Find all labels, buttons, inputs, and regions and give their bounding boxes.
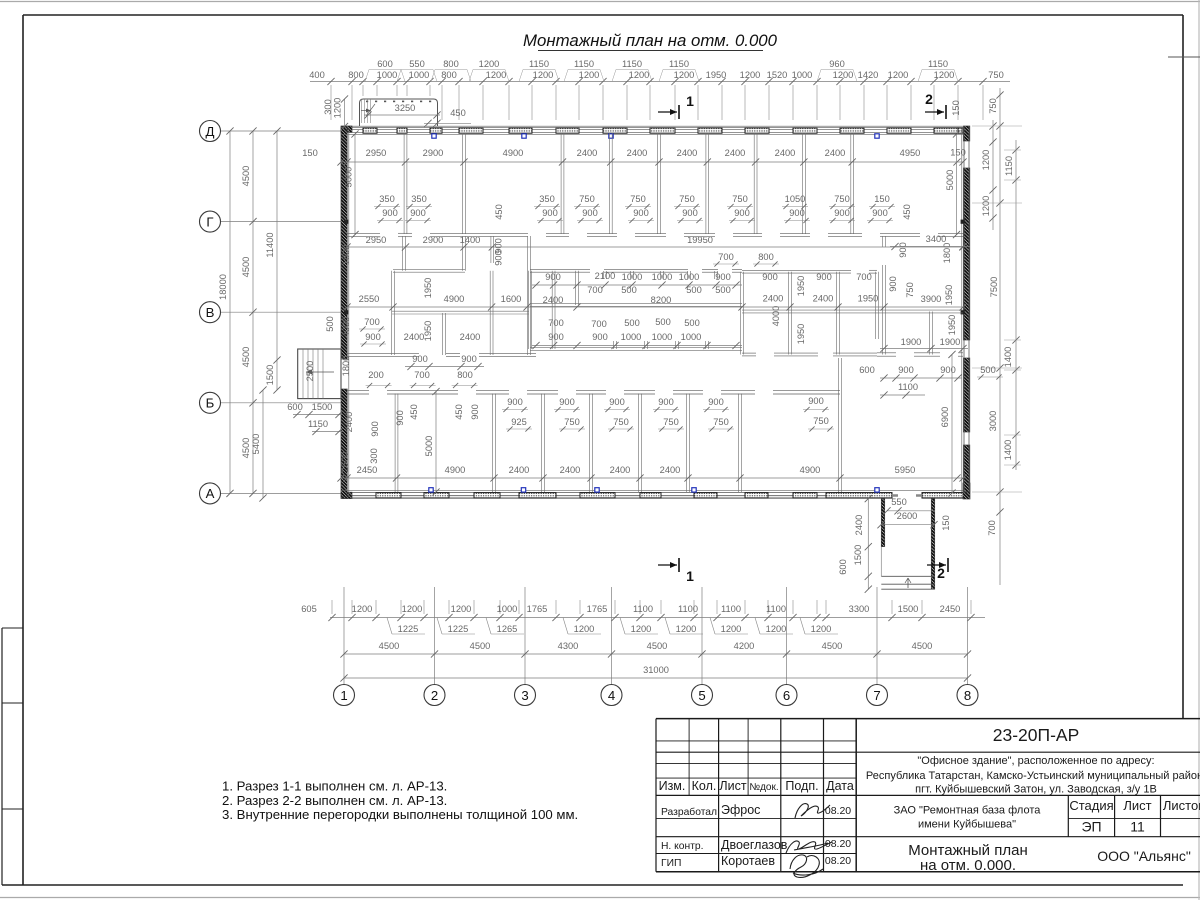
svg-text:6: 6 (783, 688, 790, 703)
svg-text:1500: 1500 (853, 545, 863, 566)
svg-text:2550: 2550 (359, 294, 380, 304)
svg-text:3900: 3900 (921, 294, 942, 304)
svg-text:А: А (206, 486, 215, 501)
svg-text:1200: 1200 (981, 150, 991, 171)
svg-text:2400: 2400 (610, 465, 631, 475)
svg-text:Республика Татарстан, Камско-У: Республика Татарстан, Камско-Устьинский … (866, 770, 1200, 782)
svg-text:1950: 1950 (796, 324, 806, 345)
svg-text:1200: 1200 (579, 70, 600, 80)
svg-text:400: 400 (309, 70, 325, 80)
svg-text:5000: 5000 (424, 436, 434, 457)
svg-text:1: 1 (340, 688, 347, 703)
svg-text:Коротаев: Коротаев (721, 854, 775, 868)
svg-text:1800: 1800 (942, 243, 952, 264)
svg-text:"Офисное здание", расположенно: "Офисное здание", расположенное по адрес… (917, 755, 1154, 767)
svg-text:1400: 1400 (460, 235, 481, 245)
svg-text:1265: 1265 (497, 624, 518, 634)
svg-text:1200: 1200 (333, 98, 343, 119)
svg-text:900: 900 (412, 354, 428, 364)
svg-text:2400: 2400 (460, 332, 481, 342)
svg-text:2400: 2400 (543, 295, 564, 305)
svg-text:Лист: Лист (1123, 798, 1151, 813)
svg-text:1100: 1100 (678, 604, 698, 614)
svg-text:1000: 1000 (679, 272, 700, 282)
svg-text:700: 700 (856, 272, 872, 282)
svg-text:500: 500 (715, 285, 731, 295)
svg-text:2: 2 (925, 91, 933, 107)
svg-text:1520: 1520 (767, 70, 788, 80)
svg-text:500: 500 (325, 316, 335, 332)
svg-text:11: 11 (1130, 819, 1145, 835)
svg-text:600: 600 (377, 59, 393, 69)
svg-text:2400: 2400 (763, 294, 784, 304)
svg-text:2. Разрез 2-2 выполнен см. л.: 2. Разрез 2-2 выполнен см. л. АР-13. (222, 793, 447, 808)
svg-text:750: 750 (679, 194, 695, 204)
svg-text:1200: 1200 (533, 70, 554, 80)
svg-text:750: 750 (663, 417, 679, 427)
svg-text:на отм. 0.000.: на отм. 0.000. (920, 857, 1016, 874)
svg-text:ЭП: ЭП (1081, 819, 1101, 835)
svg-text:1200: 1200 (721, 624, 742, 634)
svg-text:750: 750 (988, 70, 1004, 80)
svg-text:2600: 2600 (897, 511, 918, 521)
svg-text:2500: 2500 (305, 361, 315, 382)
svg-text:900: 900 (470, 404, 480, 420)
svg-text:4500: 4500 (379, 641, 400, 651)
svg-text:900: 900 (382, 208, 398, 218)
svg-text:1150: 1150 (574, 59, 594, 69)
svg-text:900: 900 (816, 272, 832, 282)
svg-text:2400: 2400 (677, 148, 698, 158)
svg-text:300: 300 (369, 448, 379, 464)
svg-text:3250: 3250 (395, 103, 416, 113)
svg-text:31000: 31000 (643, 665, 669, 675)
svg-text:В: В (206, 305, 215, 320)
svg-text:900: 900 (715, 272, 731, 282)
svg-text:900: 900 (395, 410, 405, 426)
svg-text:1100: 1100 (898, 382, 918, 392)
svg-text:2400: 2400 (577, 148, 598, 158)
svg-text:Листов: Листов (1163, 798, 1200, 813)
svg-text:2400: 2400 (813, 294, 834, 304)
svg-text:имени Куйбышева": имени Куйбышева" (918, 819, 1016, 831)
svg-text:4900: 4900 (445, 465, 466, 475)
svg-text:450: 450 (409, 404, 419, 420)
svg-text:900: 900 (410, 208, 426, 218)
svg-text:ЗАО "Ремонтная база флота: ЗАО "Ремонтная база флота (894, 805, 1042, 817)
svg-text:900: 900 (461, 354, 477, 364)
svg-text:1200: 1200 (352, 604, 373, 614)
svg-text:4950: 4950 (900, 148, 921, 158)
svg-text:пгт. Куйбышевский Затон, ул. З: пгт. Куйбышевский Затон, ул. Заводская, … (915, 784, 1157, 796)
svg-text:1000: 1000 (652, 272, 673, 282)
svg-text:3400: 3400 (926, 234, 947, 244)
svg-text:1150: 1150 (928, 59, 948, 69)
svg-text:8200: 8200 (651, 295, 672, 305)
svg-text:4500: 4500 (647, 641, 668, 651)
svg-text:500: 500 (655, 317, 671, 327)
svg-text:ООО "Альянс": ООО "Альянс" (1097, 848, 1191, 864)
svg-text:1000: 1000 (409, 70, 430, 80)
svg-text:1950: 1950 (944, 285, 954, 306)
svg-text:4500: 4500 (241, 257, 251, 278)
svg-text:2400: 2400 (660, 465, 681, 475)
svg-text:Стадия: Стадия (1069, 798, 1113, 813)
svg-text:450: 450 (450, 108, 466, 118)
svg-text:5: 5 (698, 688, 705, 703)
svg-text:1150: 1150 (529, 59, 549, 69)
svg-text:605: 605 (301, 604, 317, 614)
svg-text:1200: 1200 (981, 196, 991, 217)
svg-text:4500: 4500 (470, 641, 491, 651)
svg-text:1200: 1200 (888, 70, 909, 80)
svg-text:900: 900 (658, 397, 674, 407)
svg-text:1800: 1800 (341, 356, 351, 377)
svg-text:1000: 1000 (622, 272, 643, 282)
svg-text:900: 900 (834, 208, 850, 218)
svg-text:19950: 19950 (687, 235, 713, 245)
svg-text:150: 150 (951, 100, 961, 116)
svg-text:150: 150 (941, 515, 951, 531)
svg-text:1500: 1500 (265, 365, 275, 386)
svg-text:18000: 18000 (218, 274, 228, 300)
svg-text:2400: 2400 (854, 515, 864, 536)
svg-text:Г: Г (206, 214, 213, 229)
svg-text:1000: 1000 (377, 70, 398, 80)
svg-text:Б: Б (206, 396, 215, 411)
svg-text:1000: 1000 (652, 332, 673, 342)
svg-text:700: 700 (987, 520, 997, 536)
svg-text:4300: 4300 (558, 641, 579, 651)
svg-text:500: 500 (684, 318, 700, 328)
svg-text:800: 800 (348, 70, 364, 80)
svg-text:1200: 1200 (811, 624, 832, 634)
svg-text:1765: 1765 (527, 604, 548, 614)
svg-text:2900: 2900 (423, 235, 444, 245)
svg-text:1950: 1950 (796, 276, 806, 297)
svg-text:1: 1 (686, 568, 694, 584)
svg-text:1420: 1420 (858, 70, 879, 80)
svg-text:900: 900 (507, 397, 523, 407)
svg-text:6900: 6900 (940, 407, 950, 428)
svg-text:350: 350 (539, 194, 555, 204)
svg-text:1: 1 (686, 93, 694, 109)
svg-text:1950: 1950 (858, 294, 879, 304)
svg-text:2450: 2450 (940, 604, 961, 614)
svg-text:900: 900 (872, 208, 888, 218)
svg-text:4500: 4500 (822, 641, 843, 651)
svg-text:500: 500 (624, 318, 640, 328)
svg-text:750: 750 (988, 98, 998, 114)
svg-text:900: 900 (633, 208, 649, 218)
svg-text:1150: 1150 (669, 59, 689, 69)
svg-text:1200: 1200 (629, 70, 650, 80)
svg-text:3300: 3300 (849, 604, 870, 614)
svg-text:900: 900 (898, 365, 914, 375)
svg-text:1100: 1100 (766, 604, 786, 614)
svg-text:4900: 4900 (800, 465, 821, 475)
svg-text:23-20П-АР: 23-20П-АР (993, 725, 1080, 745)
svg-text:3000: 3000 (988, 411, 998, 432)
svg-text:Изм.: Изм. (659, 779, 686, 793)
svg-text:960: 960 (829, 59, 845, 69)
svg-text:4900: 4900 (444, 294, 465, 304)
svg-text:350: 350 (411, 194, 427, 204)
svg-text:750: 750 (905, 282, 915, 298)
svg-text:1225: 1225 (448, 624, 469, 634)
svg-text:2900: 2900 (423, 148, 444, 158)
svg-text:500: 500 (980, 365, 996, 375)
svg-text:750: 750 (713, 417, 729, 427)
svg-text:4: 4 (608, 688, 615, 703)
svg-text:600: 600 (859, 365, 875, 375)
svg-text:4500: 4500 (241, 347, 251, 368)
svg-text:150: 150 (302, 148, 318, 158)
svg-text:600: 600 (838, 559, 848, 575)
svg-text:2400: 2400 (825, 148, 846, 158)
svg-text:08.20: 08.20 (825, 855, 851, 867)
svg-text:450: 450 (902, 204, 912, 220)
svg-text:750: 750 (834, 194, 850, 204)
svg-text:900: 900 (708, 397, 724, 407)
svg-text:150: 150 (874, 194, 890, 204)
svg-text:1200: 1200 (766, 624, 787, 634)
svg-text:Подп.: Подп. (785, 779, 818, 793)
svg-text:1. Разрез 1-1 выполнен см. л.: 1. Разрез 1-1 выполнен см. л. АР-13. (222, 779, 447, 794)
svg-text:900: 900 (365, 332, 381, 342)
svg-text:1200: 1200 (676, 624, 697, 634)
svg-text:1200: 1200 (402, 604, 423, 614)
svg-text:500: 500 (621, 285, 637, 295)
svg-text:Дата: Дата (826, 779, 854, 793)
svg-text:800: 800 (443, 59, 459, 69)
svg-text:1500: 1500 (898, 604, 919, 614)
svg-text:4200: 4200 (734, 641, 755, 651)
svg-text:700: 700 (718, 252, 734, 262)
svg-text:1200: 1200 (674, 70, 695, 80)
svg-text:2400: 2400 (344, 412, 354, 433)
svg-text:925: 925 (511, 417, 527, 427)
svg-text:2950: 2950 (366, 235, 387, 245)
svg-text:1050: 1050 (785, 194, 806, 204)
svg-text:2450: 2450 (357, 465, 378, 475)
svg-text:700: 700 (548, 318, 564, 328)
svg-text:4000: 4000 (771, 306, 781, 327)
svg-text:1200: 1200 (479, 59, 500, 69)
svg-text:900: 900 (609, 397, 625, 407)
svg-text:900: 900 (888, 276, 898, 292)
svg-text:900: 900 (592, 332, 608, 342)
svg-text:1950: 1950 (947, 315, 957, 336)
svg-text:1400: 1400 (1003, 347, 1013, 368)
svg-text:2400: 2400 (560, 465, 581, 475)
svg-text:800: 800 (758, 252, 774, 262)
svg-text:2400: 2400 (627, 148, 648, 158)
svg-text:2500: 2500 (340, 452, 350, 473)
svg-text:4500: 4500 (241, 438, 251, 459)
svg-text:1000: 1000 (681, 332, 702, 342)
svg-text:350: 350 (379, 194, 395, 204)
svg-text:ГИП: ГИП (661, 858, 681, 869)
svg-text:700: 700 (587, 285, 603, 295)
svg-text:750: 750 (630, 194, 646, 204)
svg-text:2: 2 (431, 688, 438, 703)
svg-text:1150: 1150 (622, 59, 642, 69)
svg-text:1000: 1000 (792, 70, 813, 80)
svg-text:1200: 1200 (451, 604, 472, 614)
svg-text:4900: 4900 (503, 148, 524, 158)
svg-text:7: 7 (873, 688, 880, 703)
svg-text:2100: 2100 (595, 271, 616, 281)
svg-text:1600: 1600 (501, 294, 522, 304)
svg-text:2950: 2950 (366, 148, 387, 158)
svg-text:7500: 7500 (989, 277, 999, 298)
svg-text:700: 700 (591, 319, 607, 329)
svg-text:800: 800 (457, 370, 473, 380)
svg-text:2400: 2400 (775, 148, 796, 158)
svg-text:550: 550 (409, 59, 425, 69)
svg-text:Двоеглазов: Двоеглазов (721, 838, 788, 852)
svg-text:800: 800 (441, 70, 457, 80)
svg-text:Монтажный план на отм. 0.000: Монтажный план на отм. 0.000 (523, 31, 778, 50)
svg-text:1500: 1500 (312, 402, 333, 412)
svg-text:1200: 1200 (934, 70, 955, 80)
svg-text:1200: 1200 (486, 70, 507, 80)
svg-text:2400: 2400 (725, 148, 746, 158)
svg-text:1900: 1900 (940, 337, 961, 347)
svg-text:900: 900 (898, 242, 908, 258)
svg-text:900: 900 (542, 208, 558, 218)
svg-text:1950: 1950 (423, 321, 433, 342)
svg-text:1000: 1000 (621, 332, 642, 342)
svg-text:4500: 4500 (912, 641, 933, 651)
svg-text:600: 600 (287, 402, 303, 412)
svg-text:1225: 1225 (398, 624, 419, 634)
svg-text:1000: 1000 (497, 604, 518, 614)
svg-text:700: 700 (414, 370, 430, 380)
svg-text:550: 550 (891, 497, 907, 507)
svg-text:2400: 2400 (509, 465, 530, 475)
svg-text:450: 450 (454, 404, 464, 420)
svg-text:300: 300 (323, 99, 333, 115)
svg-text:1950: 1950 (706, 70, 727, 80)
svg-text:900: 900 (370, 421, 380, 437)
svg-text:450: 450 (494, 204, 504, 220)
svg-text:900: 900 (682, 208, 698, 218)
svg-text:750: 750 (613, 417, 629, 427)
svg-text:3. Внутренние перегородки выпо: 3. Внутренние перегородки выполнены толщ… (222, 807, 578, 822)
svg-text:Эфрос: Эфрос (721, 803, 760, 817)
svg-text:1765: 1765 (587, 604, 608, 614)
svg-text:1950: 1950 (423, 278, 433, 299)
svg-text:Н. контр.: Н. контр. (661, 841, 704, 852)
svg-text:900: 900 (545, 272, 561, 282)
svg-text:Разработал: Разработал (661, 806, 717, 818)
svg-text:11400: 11400 (265, 232, 275, 257)
svg-text:750: 750 (579, 194, 595, 204)
svg-text:750: 750 (732, 194, 748, 204)
svg-text:1200: 1200 (631, 624, 652, 634)
svg-text:900: 900 (808, 396, 824, 406)
svg-text:1200: 1200 (740, 70, 761, 80)
svg-text:900: 900 (494, 250, 504, 266)
svg-text:2: 2 (937, 565, 945, 581)
svg-text:900: 900 (762, 272, 778, 282)
svg-text:500: 500 (686, 285, 702, 295)
svg-text:Лист: Лист (719, 779, 746, 793)
svg-text:8: 8 (964, 688, 971, 703)
svg-text:750: 750 (564, 417, 580, 427)
svg-text:900: 900 (734, 208, 750, 218)
svg-text:№док.: №док. (749, 782, 778, 793)
svg-text:4000: 4000 (341, 317, 351, 338)
svg-text:5400: 5400 (251, 434, 261, 455)
svg-text:5950: 5950 (895, 465, 916, 475)
svg-text:Кол.: Кол. (692, 779, 717, 793)
svg-text:1400: 1400 (1003, 440, 1013, 461)
svg-text:1100: 1100 (633, 604, 653, 614)
svg-text:3: 3 (521, 688, 528, 703)
svg-text:1200: 1200 (833, 70, 854, 80)
svg-text:200: 200 (368, 370, 384, 380)
svg-text:700: 700 (364, 317, 380, 327)
svg-text:900: 900 (789, 208, 805, 218)
svg-text:5000: 5000 (344, 167, 354, 188)
svg-text:900: 900 (559, 397, 575, 407)
svg-text:1900: 1900 (901, 337, 922, 347)
svg-text:150: 150 (950, 148, 966, 158)
svg-text:900: 900 (548, 332, 564, 342)
svg-text:5000: 5000 (945, 170, 955, 191)
svg-text:2400: 2400 (404, 332, 425, 342)
svg-text:1150: 1150 (1004, 156, 1014, 176)
svg-text:Д: Д (206, 124, 215, 139)
svg-text:750: 750 (813, 416, 829, 426)
svg-text:1200: 1200 (574, 624, 595, 634)
svg-text:900: 900 (940, 365, 956, 375)
svg-text:900: 900 (582, 208, 598, 218)
svg-text:1150: 1150 (308, 419, 328, 429)
svg-text:4500: 4500 (241, 166, 251, 187)
svg-text:1100: 1100 (721, 604, 741, 614)
